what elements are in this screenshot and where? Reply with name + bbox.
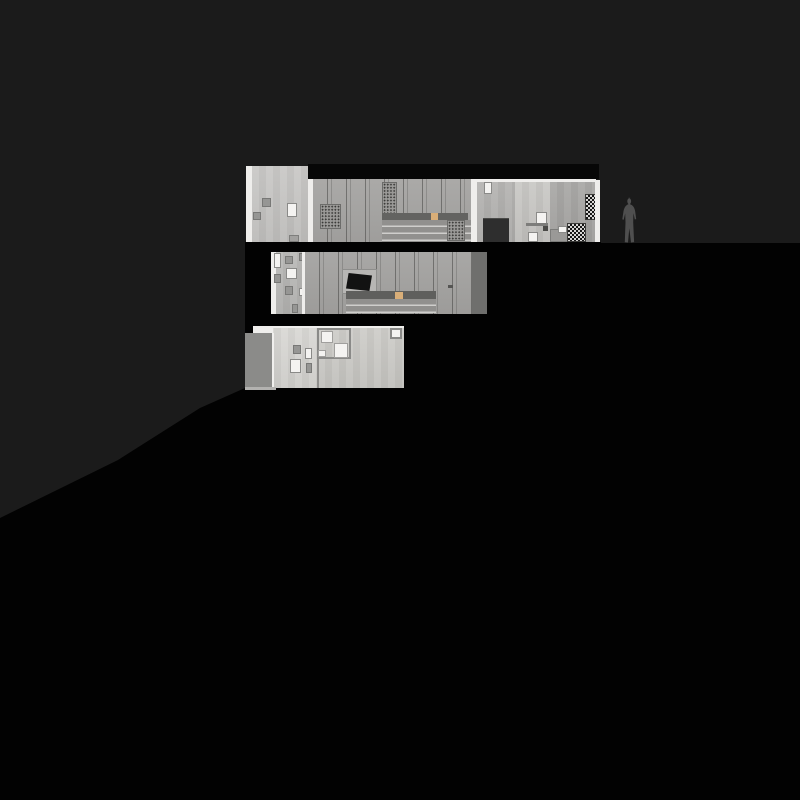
composition-square	[334, 343, 348, 358]
small-window	[253, 212, 261, 220]
floor-box	[528, 232, 538, 242]
perforated-panel	[447, 220, 465, 241]
perforated-panel	[320, 204, 341, 229]
small-opening	[306, 363, 312, 373]
small-window	[274, 274, 281, 283]
panel-base-line	[245, 387, 276, 390]
orange-accent-block	[431, 213, 438, 220]
lower-floor-section	[245, 326, 404, 389]
small-window	[292, 304, 298, 313]
dark-end-wall	[472, 252, 487, 314]
orange-accent-block	[395, 292, 403, 299]
perforated-panel-tall	[382, 182, 397, 215]
window	[286, 268, 297, 279]
base-vent	[289, 235, 299, 242]
dark-beam-band	[382, 213, 468, 220]
upper-right-white-edge	[595, 180, 600, 242]
clerestory-window	[484, 182, 492, 194]
small-window	[285, 286, 293, 295]
switch-mark	[448, 285, 453, 288]
small-framed-window	[390, 328, 402, 339]
terrain-below-building	[245, 388, 800, 800]
small-opening	[293, 345, 301, 354]
composition-square	[321, 331, 333, 343]
shelf-object	[543, 226, 548, 231]
person-silhouette-path	[622, 198, 636, 243]
section-drawing-canvas	[0, 0, 800, 800]
gray-service-panel	[245, 333, 274, 387]
middle-floor-section	[271, 252, 487, 314]
window	[287, 203, 297, 217]
small-opening	[305, 348, 312, 359]
small-window	[285, 256, 293, 264]
tv-screen	[346, 273, 372, 291]
ceiling-line	[477, 179, 596, 182]
upper-floor-section	[246, 166, 600, 242]
composition-square	[318, 350, 326, 357]
upper-left-concrete-panel	[252, 166, 308, 242]
textured-screen-block	[567, 223, 586, 242]
small-window	[262, 198, 271, 207]
window	[274, 253, 281, 268]
dark-doorway	[483, 218, 509, 242]
person-figure	[617, 197, 639, 243]
louver-band	[346, 299, 436, 313]
small-white-box	[558, 226, 567, 233]
dark-counter-band	[346, 291, 436, 299]
small-opening	[290, 359, 301, 373]
